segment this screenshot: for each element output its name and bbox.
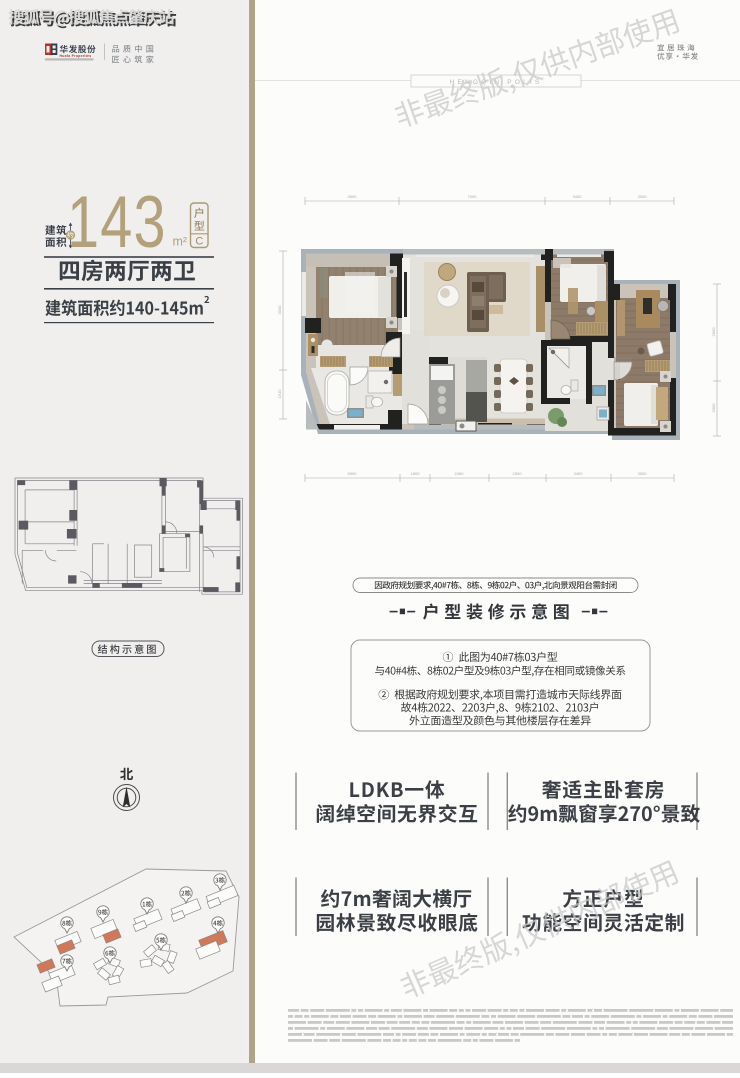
svg-text:m²: m² <box>173 235 188 249</box>
svg-text:2450: 2450 <box>455 471 465 476</box>
svg-text:1800: 1800 <box>411 471 421 476</box>
svg-text:3330: 3330 <box>277 305 282 315</box>
svg-text:5900: 5900 <box>348 471 358 476</box>
svg-text:2600: 2600 <box>711 327 716 337</box>
svg-text:3400: 3400 <box>574 471 584 476</box>
svg-text:3000: 3000 <box>638 471 648 476</box>
svg-text:2900: 2900 <box>513 471 523 476</box>
svg-text:Huafa Properties: Huafa Properties <box>60 54 92 58</box>
svg-text:1510: 1510 <box>277 389 282 399</box>
svg-text:2000: 2000 <box>711 403 716 413</box>
svg-text:3400: 3400 <box>573 194 583 199</box>
svg-text:143: 143 <box>67 180 167 262</box>
svg-text:3000: 3000 <box>638 194 648 199</box>
svg-text:4500: 4500 <box>348 194 358 199</box>
svg-text:C: C <box>195 236 203 248</box>
svg-text:7000: 7000 <box>468 194 478 199</box>
